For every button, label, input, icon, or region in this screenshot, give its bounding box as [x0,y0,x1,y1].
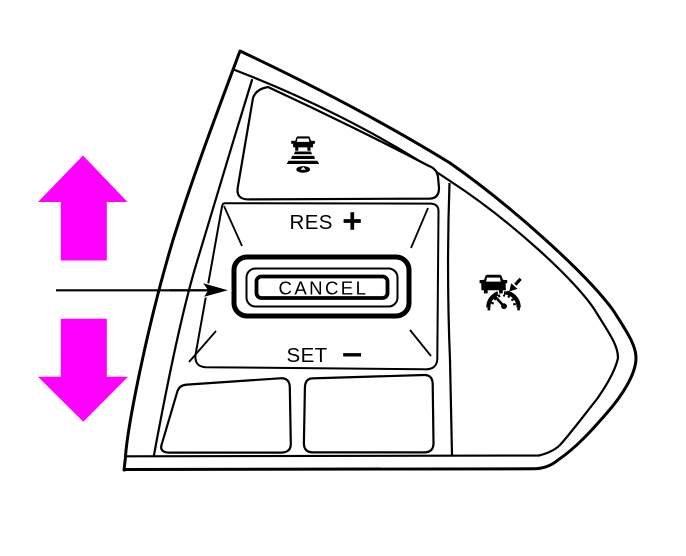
svg-text:SET: SET [287,344,328,367]
svg-text:CANCEL: CANCEL [279,278,369,299]
svg-text:RES: RES [290,211,333,234]
